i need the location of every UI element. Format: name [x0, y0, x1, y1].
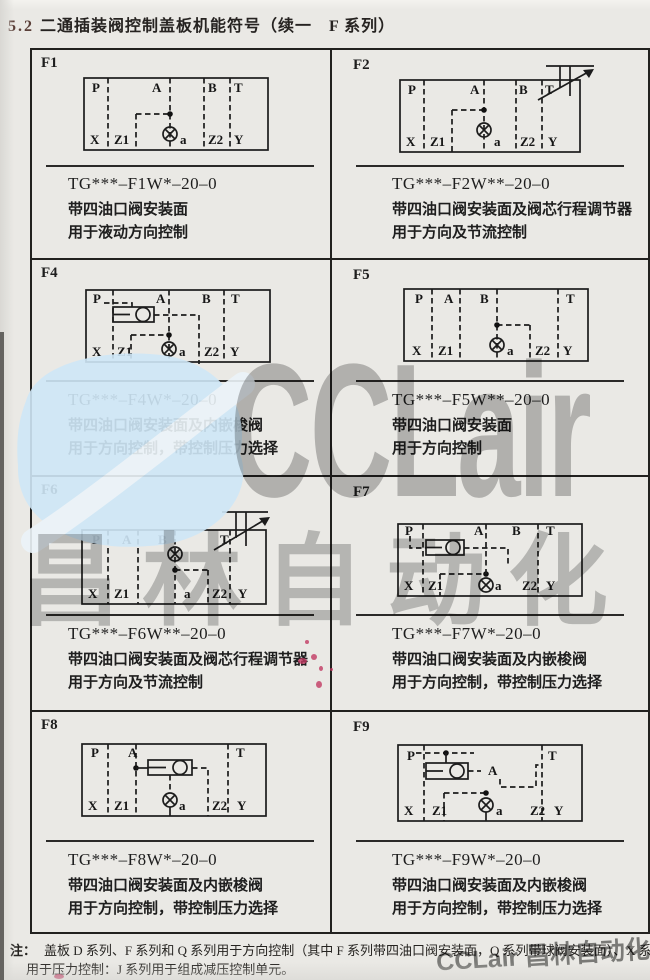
port-Z1: Z1 [114, 586, 129, 601]
port-T: T [231, 291, 240, 306]
hydraulic-symbol-F4: P A B T X Z1 a Z2 Y [84, 288, 274, 366]
port-T: T [236, 745, 245, 760]
divider-line [46, 614, 314, 616]
port-T: T [546, 523, 555, 538]
description-2: 用于方向控制 [392, 437, 482, 458]
description-1: 带四油口阀安装面及阀芯行程调节器 [392, 198, 632, 219]
port-A: A [444, 291, 454, 306]
description-1: 带四油口阀安装面及内嵌梭阀 [392, 648, 587, 669]
port-Z2: Z2 [204, 344, 219, 359]
description-2: 用于方向及节流控制 [392, 221, 527, 242]
port-A: A [122, 532, 132, 547]
footnote-label: 注： [10, 940, 36, 959]
port-P: P [93, 291, 101, 306]
divider-line [356, 165, 624, 167]
port-P: P [92, 532, 100, 547]
model-code: TG***–F8W*–20–0 [68, 850, 217, 870]
port-Z1: Z1 [428, 578, 443, 593]
shuttle-valve-icon [426, 763, 468, 779]
port-a: a [179, 344, 186, 359]
hydraulic-symbol-F2: P A B T X Z1 a Z2 Y [398, 62, 598, 158]
port-A: A [156, 291, 166, 306]
port-Y: Y [238, 586, 248, 601]
cell-F9: F9 P [332, 712, 648, 932]
description-2: 用于方向控制，带控制压力选择 [68, 897, 278, 918]
cell-id: F8 [41, 717, 58, 734]
port-T: T [220, 532, 229, 547]
port-Z2: Z2 [520, 134, 535, 149]
divider-line [356, 614, 624, 616]
port-Z1: Z1 [438, 343, 453, 358]
cell-F5: F5 P A B T X Z1 a Z2 Y [332, 260, 648, 477]
port-X: X [90, 132, 100, 147]
model-code: TG***–F6W**–20–0 [68, 624, 226, 644]
port-B: B [512, 523, 521, 538]
cell-id: F5 [353, 267, 370, 284]
model-code: TG***–F5W**–20–0 [392, 390, 550, 410]
cell-id: F6 [41, 482, 58, 499]
divider-line [46, 165, 314, 167]
description-2: 用于方向控制，带控制压力选择 [68, 437, 278, 458]
port-a: a [184, 586, 191, 601]
port-B: B [208, 80, 217, 95]
port-Z1: Z1 [114, 132, 129, 147]
port-P: P [92, 80, 100, 95]
description-1: 带四油口阀安装面及内嵌梭阀 [68, 414, 263, 435]
port-X: X [88, 586, 98, 601]
port-X: X [412, 343, 422, 358]
port-Z2: Z2 [212, 586, 227, 601]
port-P: P [407, 748, 415, 763]
ink-speck [305, 640, 309, 644]
port-Y: Y [237, 798, 247, 813]
description-1: 带四油口阀安装面及阀芯行程调节器 [68, 648, 308, 669]
port-T: T [234, 80, 243, 95]
port-X: X [404, 803, 414, 818]
cell-F6: F6 P A [32, 477, 332, 712]
port-Z2: Z2 [522, 578, 537, 593]
description-2: 用于方向及节流控制 [68, 671, 203, 692]
cell-id: F1 [41, 55, 58, 72]
hydraulic-symbol-F6: P A B T X Z1 a Z2 Y [80, 508, 270, 608]
scanned-catalog-page: 5.2二通插装阀控制盖板机能符号（续一 F 系列） F1 P A B T X [0, 0, 650, 980]
cell-F2: F2 P A [332, 50, 648, 260]
divider-line [356, 840, 624, 842]
port-X: X [406, 134, 416, 149]
port-a: a [507, 343, 514, 358]
port-Z2: Z2 [535, 343, 550, 358]
description-1: 带四油口阀安装面 [68, 198, 188, 219]
port-Z1: Z1 [432, 803, 447, 818]
port-Y: Y [546, 578, 556, 593]
port-B: B [480, 291, 489, 306]
model-code: TG***–F4W*–20–0 [68, 390, 217, 410]
port-Z1: Z1 [117, 344, 132, 359]
port-B: B [519, 82, 528, 97]
port-Z1: Z1 [114, 798, 129, 813]
ink-speck [319, 666, 323, 671]
port-a: a [495, 578, 502, 593]
description-1: 带四油口阀安装面及内嵌梭阀 [68, 874, 263, 895]
port-a: a [180, 132, 187, 147]
hydraulic-symbol-F7: P A B T X Z1 a Z2 Y [396, 522, 586, 600]
port-P: P [405, 523, 413, 538]
port-T: T [566, 291, 575, 306]
port-Y: Y [230, 344, 240, 359]
port-P: P [408, 82, 416, 97]
port-Z1: Z1 [430, 134, 445, 149]
port-X: X [404, 578, 414, 593]
ink-speck [330, 668, 333, 671]
divider-line [46, 380, 314, 382]
footnote-line-1: 盖板 D 系列、F 系列和 Q 系列用于方向控制（其中 F 系列带四油口阀安装面… [44, 940, 650, 959]
shuttle-valve-icon [148, 760, 192, 775]
cell-id: F2 [353, 57, 370, 74]
port-a: a [494, 134, 501, 149]
symbol-table: F1 P A B T X Z1 a Z2 Y [30, 48, 650, 934]
port-B: B [158, 532, 167, 547]
cell-id: F9 [353, 719, 370, 736]
cell-F4: F4 P A B T [32, 260, 332, 477]
description-1: 带四油口阀安装面 [392, 414, 512, 435]
cell-F1: F1 P A B T X Z1 a Z2 Y [32, 50, 332, 260]
port-Y: Y [234, 132, 244, 147]
model-code: TG***–F1W*–20–0 [68, 174, 217, 194]
port-Z2: Z2 [212, 798, 227, 813]
port-Z2: Z2 [530, 803, 545, 818]
cell-id: F7 [353, 484, 370, 501]
port-A: A [474, 523, 484, 538]
port-T: T [545, 82, 554, 97]
shuttle-valve-icon [426, 540, 464, 555]
description-1: 带四油口阀安装面及内嵌梭阀 [392, 874, 587, 895]
book-spine-shadow [0, 332, 4, 980]
hydraulic-symbol-F8: P A T X Z1 a Z2 Y [80, 742, 270, 820]
port-Y: Y [563, 343, 573, 358]
port-Y: Y [548, 134, 558, 149]
port-P: P [415, 291, 423, 306]
shuttle-valve-icon [113, 307, 154, 322]
section-title: 二通插装阀控制盖板机能符号（续一 F 系列） [40, 18, 395, 35]
description-2: 用于液动方向控制 [68, 221, 188, 242]
port-A: A [488, 763, 498, 778]
hydraulic-symbol-F1: P A B T X Z1 a Z2 Y [82, 76, 272, 154]
ink-speck [54, 974, 64, 979]
section-number: 5.2 [8, 18, 34, 35]
divider-line [356, 380, 624, 382]
port-A: A [128, 745, 138, 760]
cell-id: F4 [41, 265, 58, 282]
hydraulic-symbol-F9: P A T X Z1 a Z2 Y [396, 743, 586, 823]
port-B: B [202, 291, 211, 306]
model-code: TG***–F2W**–20–0 [392, 174, 550, 194]
ink-speck [298, 658, 307, 664]
port-A: A [470, 82, 480, 97]
hydraulic-symbol-F5: P A B T X Z1 a Z2 Y [402, 287, 592, 365]
port-a: a [496, 803, 503, 818]
footnote-line-2: 用于压力控制：J 系列用于组成减压控制单元。 [26, 959, 294, 978]
ink-speck [311, 654, 317, 660]
cell-F7: F7 P A B T [332, 477, 648, 712]
description-2: 用于方向控制，带控制压力选择 [392, 671, 602, 692]
divider-line [46, 840, 314, 842]
description-2: 用于方向控制，带控制压力选择 [392, 897, 602, 918]
port-Y: Y [554, 803, 564, 818]
port-T: T [548, 748, 557, 763]
model-code: TG***–F9W*–20–0 [392, 850, 541, 870]
port-X: X [92, 344, 102, 359]
page-title: 5.2二通插装阀控制盖板机能符号（续一 F 系列） [8, 12, 395, 36]
port-A: A [152, 80, 162, 95]
model-code: TG***–F7W*–20–0 [392, 624, 541, 644]
port-Z2: Z2 [208, 132, 223, 147]
port-X: X [88, 798, 98, 813]
port-P: P [91, 745, 99, 760]
ink-speck [316, 681, 322, 688]
port-a: a [179, 798, 186, 813]
cell-F8: F8 P A T X [32, 712, 332, 932]
